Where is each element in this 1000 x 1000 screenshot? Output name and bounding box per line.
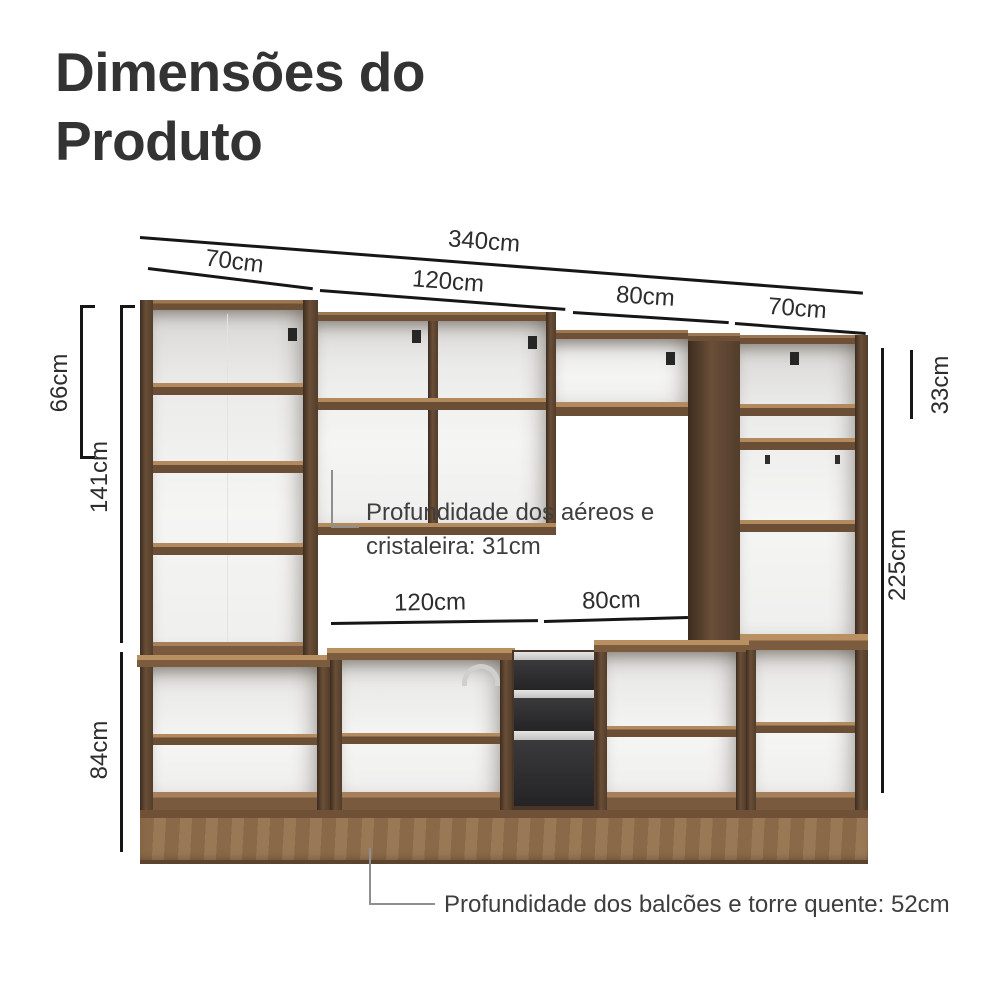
shelf xyxy=(740,520,855,532)
door-hinge xyxy=(288,328,297,341)
cabinet-side-panel xyxy=(303,300,318,656)
leader-line xyxy=(331,526,359,528)
door-hinge xyxy=(790,352,799,365)
shelf xyxy=(153,461,303,473)
cabinet-bottom-board xyxy=(153,792,317,810)
rail-hook xyxy=(835,455,840,464)
drawer-front-2 xyxy=(514,698,594,731)
shelf xyxy=(153,734,317,745)
cabinet-interior xyxy=(153,310,303,648)
plinth-bottom-edge xyxy=(140,860,868,864)
cabinet-side-panel xyxy=(330,660,342,810)
shelf xyxy=(318,398,546,410)
dim-tick xyxy=(120,305,135,308)
column-top-edge xyxy=(688,333,740,341)
door-hinge xyxy=(528,336,537,349)
dim-label-total-height: 225cm xyxy=(884,529,912,601)
leader-line xyxy=(331,470,333,528)
dim-label-counter-section-1: 120cm xyxy=(394,588,467,617)
shelf xyxy=(153,383,303,395)
shelf xyxy=(342,733,500,744)
cabinet-interior xyxy=(556,339,688,402)
cabinet-bottom-board xyxy=(153,642,303,655)
dim-line-upper-cabinet-height xyxy=(80,305,83,459)
tower-mid-board xyxy=(740,634,868,650)
cabinet-side-panel xyxy=(736,652,746,810)
dim-line-base-height xyxy=(120,652,123,852)
page-title: Dimensões do Produto xyxy=(55,38,425,176)
rail-hook xyxy=(765,455,770,464)
dim-label-total-width: 340cm xyxy=(447,225,521,258)
dim-line-top-section-3 xyxy=(573,311,729,324)
dim-label-top-section-3: 80cm xyxy=(615,281,675,313)
cabinet-bottom-board xyxy=(756,792,855,810)
back-panel-seam xyxy=(227,314,228,644)
drawer-front-3 xyxy=(514,740,594,806)
dim-label-counter-section-2: 80cm xyxy=(582,586,641,616)
dim-label-upper-cabinet-height: 66cm xyxy=(46,354,74,413)
cabinet-side-panel xyxy=(855,335,868,652)
cabinet-side-panel xyxy=(855,650,868,810)
dim-label-left-tower-upper-height: 141cm xyxy=(86,441,114,513)
drawer-handle-strip xyxy=(514,652,594,660)
upper-depth-note-line2: cristaleira: 31cm xyxy=(366,530,654,564)
drawer-handle-strip xyxy=(514,690,594,698)
dim-line-left-tower-upper-height xyxy=(120,305,123,643)
product-dimensions-diagram: Dimensões do Produto xyxy=(0,0,1000,1000)
dim-tick xyxy=(80,305,95,308)
cabinet-interior xyxy=(153,667,317,792)
cabinet-side-panel xyxy=(140,300,153,656)
cabinet-top-board xyxy=(556,330,688,339)
shelf xyxy=(607,726,736,737)
cabinet-side-panel xyxy=(746,650,756,810)
cabinet-bottom-board xyxy=(607,792,736,810)
drawer-front-1 xyxy=(514,660,594,690)
shelf xyxy=(740,404,855,416)
cabinet-top-board xyxy=(318,312,556,321)
countertop xyxy=(327,648,515,660)
cabinet-interior xyxy=(740,344,855,634)
dim-label-right-upper-compartment: 33cm xyxy=(927,356,955,415)
cabinet-top-board xyxy=(740,335,868,344)
column-panel xyxy=(688,333,740,652)
cabinet-interior xyxy=(607,652,736,792)
cabinet-bottom-board xyxy=(556,402,688,416)
shelf xyxy=(153,543,303,555)
shelf xyxy=(756,722,855,733)
dim-line-counter-section-2 xyxy=(544,616,688,623)
cabinet-interior xyxy=(756,650,855,792)
cabinet-side-panel xyxy=(317,667,330,810)
upper-depth-note: Profundidade dos aéreos e cristaleira: 3… xyxy=(366,496,654,564)
plinth-upper-strip xyxy=(140,810,868,818)
dim-line-counter-section-1 xyxy=(331,619,538,625)
cabinet-side-panel xyxy=(500,660,512,810)
dim-line-top-section-4 xyxy=(735,322,866,335)
upper-depth-note-line1: Profundidade dos aéreos e xyxy=(366,496,654,530)
page-title-line2: Produto xyxy=(55,107,425,176)
plinth-front xyxy=(140,818,868,864)
dim-label-top-section-2: 120cm xyxy=(411,265,485,298)
countertop xyxy=(594,640,749,652)
cabinet-bottom-board xyxy=(342,792,500,810)
door-hinge xyxy=(412,330,421,343)
shelf xyxy=(740,438,855,450)
cabinet-divider xyxy=(428,321,438,523)
countertop xyxy=(137,655,333,667)
page-title-line1: Dimensões do xyxy=(55,38,425,107)
dim-label-base-height: 84cm xyxy=(86,721,114,780)
door-hinge xyxy=(666,352,675,365)
drawer-handle-strip xyxy=(514,731,594,740)
cabinet-top-board xyxy=(140,300,318,310)
cabinet-side-panel xyxy=(596,652,607,810)
dim-label-top-section-4: 70cm xyxy=(767,293,828,325)
leader-line xyxy=(369,903,435,905)
base-depth-note: Profundidade dos balcões e torre quente:… xyxy=(444,888,950,922)
dim-line-right-upper-compartment xyxy=(910,350,913,419)
leader-line xyxy=(369,848,371,905)
cabinet-side-panel xyxy=(140,667,153,810)
